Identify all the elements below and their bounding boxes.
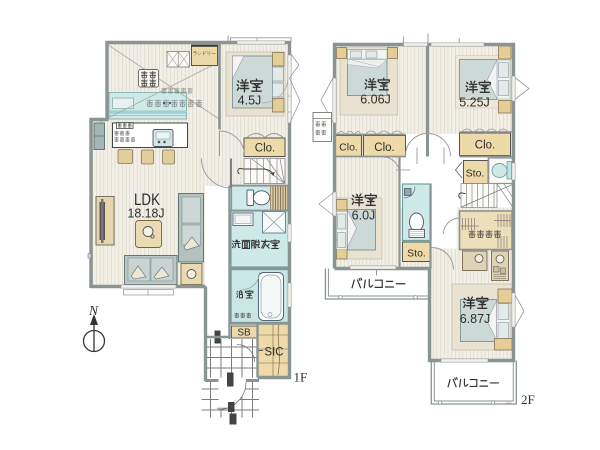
svg-text:Sto.: Sto. (407, 248, 426, 260)
svg-text:6.06J: 6.06J (360, 93, 391, 107)
svg-text:5.25J: 5.25J (459, 96, 490, 110)
svg-text:Clo.: Clo. (374, 142, 394, 154)
svg-text:18.18J: 18.18J (128, 206, 165, 221)
svg-text:2F: 2F (521, 392, 535, 407)
svg-text:Sto.: Sto. (466, 168, 485, 180)
svg-text:Clo.: Clo. (475, 140, 495, 152)
svg-text:4.5J: 4.5J (238, 94, 262, 108)
svg-text:Clo.: Clo. (255, 143, 275, 155)
svg-text:SIC: SIC (264, 347, 283, 359)
svg-text:SB: SB (237, 328, 251, 339)
svg-text:Clo.: Clo. (339, 142, 358, 154)
svg-text:6.87J: 6.87J (460, 312, 491, 326)
svg-text:6.0J: 6.0J (352, 209, 376, 223)
svg-text:1F: 1F (294, 370, 308, 385)
